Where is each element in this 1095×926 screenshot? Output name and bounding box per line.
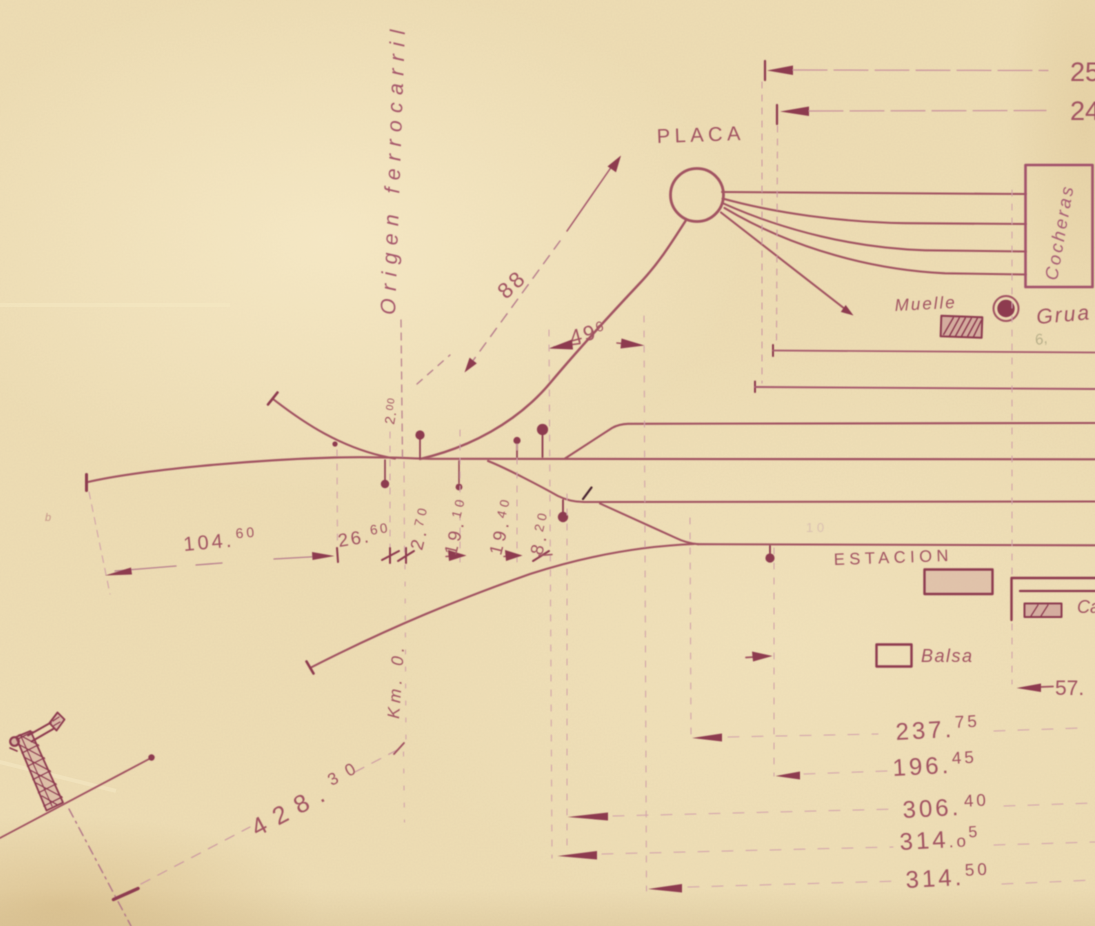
svg-text:25: 25 (1070, 57, 1095, 87)
svg-text:57.: 57. (1055, 677, 1084, 700)
svg-text:24: 24 (1070, 96, 1095, 126)
svg-text:b: b (45, 512, 51, 524)
svg-text:1 0: 1 0 (806, 520, 824, 535)
svg-text:PLACA: PLACA (656, 123, 745, 148)
svg-text:Muelle: Muelle (894, 293, 957, 315)
svg-text:Ca: Ca (1077, 597, 1095, 617)
svg-text:Balsa: Balsa (921, 646, 974, 666)
svg-text:Grua: Grua (1035, 301, 1091, 329)
